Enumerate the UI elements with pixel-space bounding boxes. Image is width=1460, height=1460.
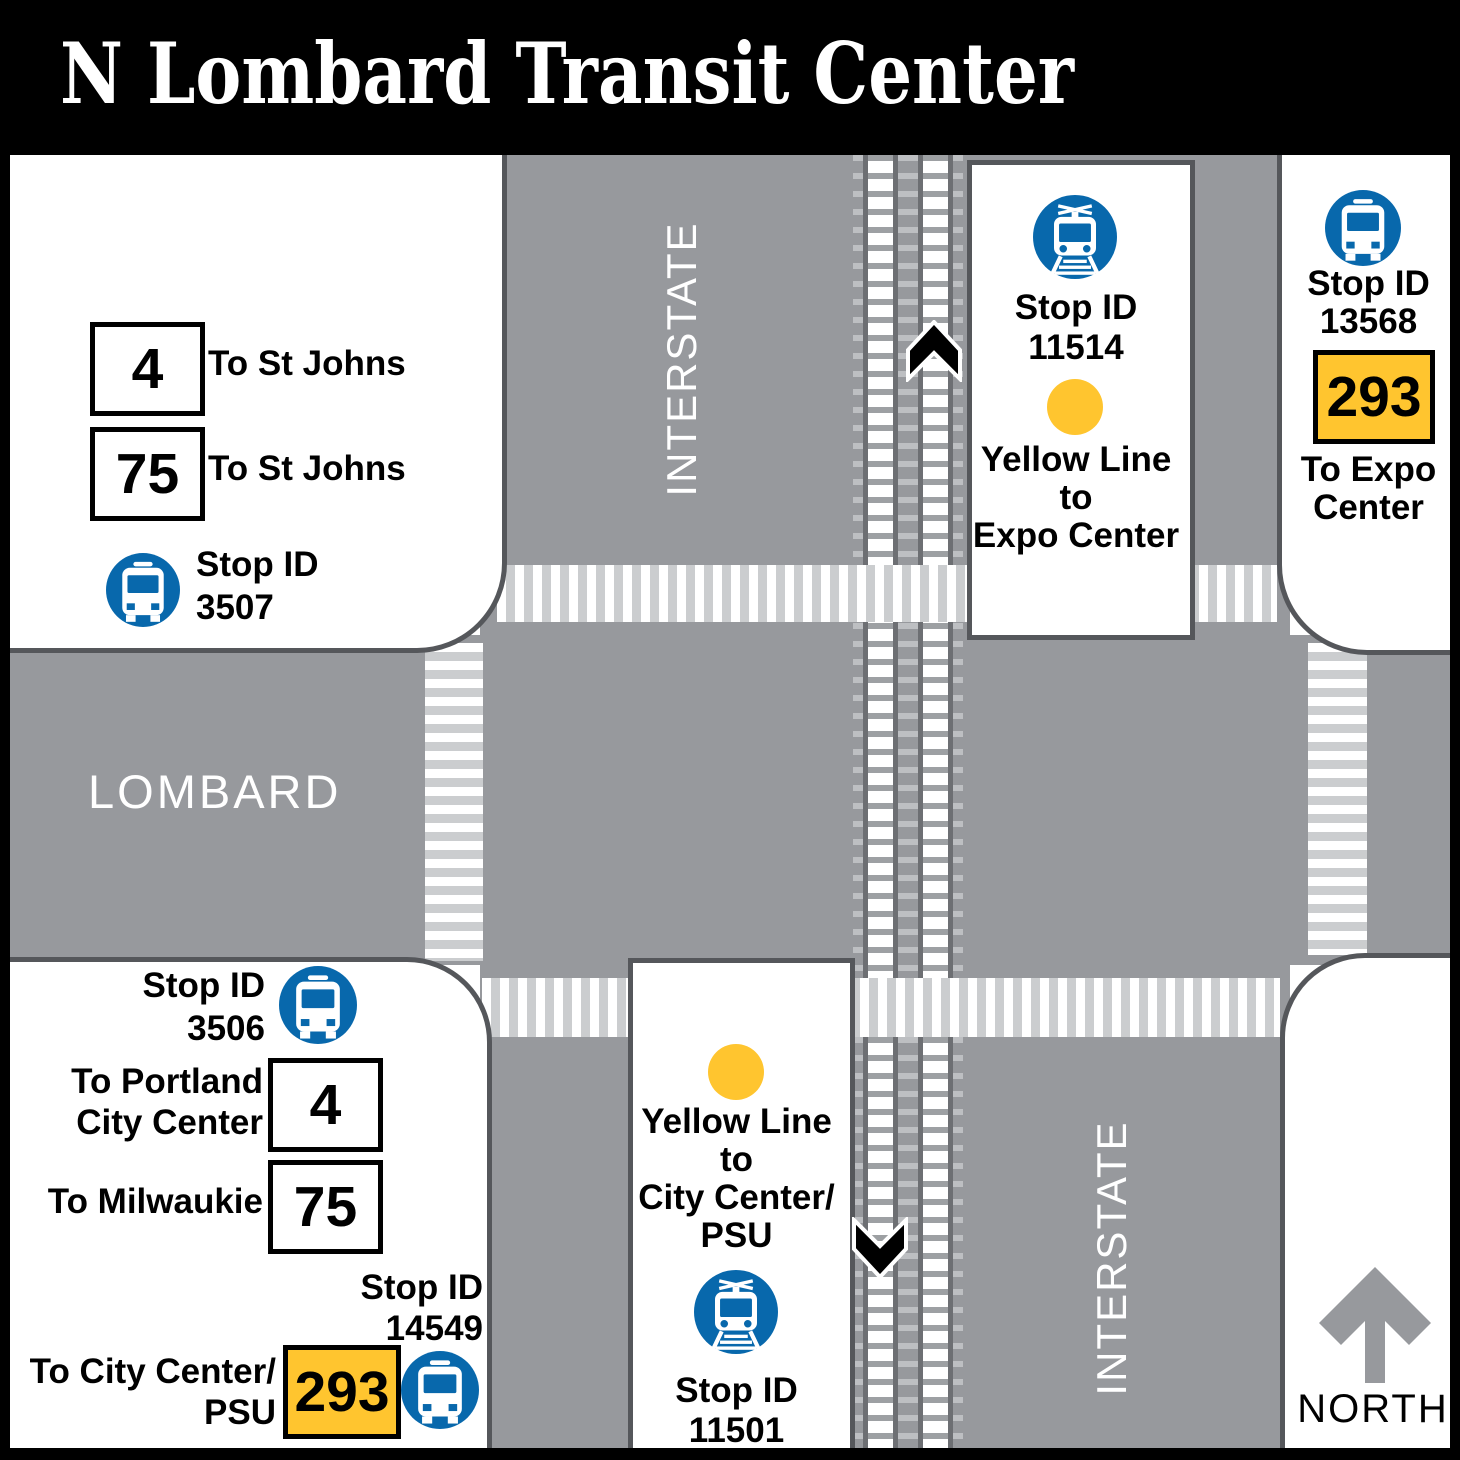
stop-id-caption: Stop ID bbox=[210, 1267, 483, 1308]
route-number: 75 bbox=[294, 1174, 357, 1240]
caption-line: To Expo bbox=[1287, 451, 1450, 489]
caption-line: City Center bbox=[10, 1102, 263, 1143]
street-label-interstate-north: INTERSTATE bbox=[659, 155, 705, 569]
header-bar: N Lombard Transit Center bbox=[0, 0, 1460, 155]
route-4-badge-north: 4 bbox=[90, 322, 205, 416]
route-number: 293 bbox=[294, 1359, 389, 1425]
north-arrow-icon bbox=[1313, 1263, 1437, 1387]
route-number: 4 bbox=[310, 1072, 342, 1138]
stop-id-caption: Stop ID bbox=[196, 543, 318, 586]
yellow-line-dot-icon bbox=[1047, 379, 1103, 435]
stop-11501-label: Stop ID 11501 bbox=[628, 1371, 845, 1448]
route-293-destination-north: To Expo Center bbox=[1287, 451, 1450, 527]
stop-id-caption: Stop ID bbox=[1287, 265, 1450, 303]
route-75-badge-north: 75 bbox=[90, 427, 205, 521]
light-rail-icon bbox=[1033, 195, 1117, 279]
route-number: 4 bbox=[132, 336, 164, 402]
caption-line: To Portland bbox=[10, 1061, 263, 1102]
stop-14549-label: Stop ID 14549 bbox=[210, 1267, 483, 1349]
route-number: 75 bbox=[116, 441, 179, 507]
route-number: 293 bbox=[1326, 364, 1421, 430]
stop-id-value: 13568 bbox=[1287, 303, 1450, 341]
stop-id-value: 11514 bbox=[967, 328, 1185, 368]
caption-line: City Center/ bbox=[628, 1179, 845, 1217]
route-4-destination-south: To Portland City Center bbox=[10, 1061, 263, 1143]
stop-13568-label: Stop ID 13568 bbox=[1287, 265, 1450, 341]
route-75-destination-north: To St Johns bbox=[208, 447, 406, 490]
bus-icon bbox=[279, 966, 357, 1044]
bus-icon bbox=[106, 553, 180, 627]
southbound-direction-chevron-icon bbox=[852, 1217, 908, 1279]
caption-line: Yellow Line bbox=[967, 441, 1185, 479]
stop-id-value: 11501 bbox=[628, 1411, 845, 1448]
bus-icon bbox=[401, 1351, 479, 1429]
caption-line: To City Center/ bbox=[10, 1351, 276, 1392]
yellow-line-south-caption: Yellow Line to City Center/ PSU bbox=[628, 1103, 845, 1255]
route-75-destination-south: To Milwaukie bbox=[10, 1181, 263, 1223]
street-label-lombard: LOMBARD bbox=[88, 765, 341, 819]
route-4-destination-north: To St Johns bbox=[208, 342, 406, 385]
light-rail-icon bbox=[694, 1270, 778, 1354]
route-293-badge-south: 293 bbox=[283, 1345, 401, 1439]
yellow-line-dot-icon bbox=[708, 1044, 764, 1100]
stop-id-value: 3506 bbox=[10, 1007, 265, 1050]
route-4-badge-south: 4 bbox=[268, 1058, 383, 1152]
stop-3507-label: Stop ID 3507 bbox=[196, 543, 318, 629]
stop-id-caption: Stop ID bbox=[628, 1371, 845, 1411]
northbound-direction-chevron-icon bbox=[906, 320, 962, 382]
caption-line: Yellow Line bbox=[628, 1103, 845, 1141]
caption-line: Expo Center bbox=[967, 517, 1185, 555]
caption-line: Center bbox=[1287, 489, 1450, 527]
page-title: N Lombard Transit Center bbox=[60, 24, 1074, 124]
caption-line: PSU bbox=[10, 1392, 276, 1433]
stop-id-value: 14549 bbox=[210, 1308, 483, 1349]
caption-line: to bbox=[967, 479, 1185, 517]
street-label-interstate-south: INTERSTATE bbox=[1089, 1048, 1135, 1448]
stop-id-caption: Stop ID bbox=[967, 288, 1185, 328]
stop-3506-label: Stop ID 3506 bbox=[10, 964, 265, 1050]
crosswalk-east bbox=[1308, 643, 1367, 955]
caption-line: PSU bbox=[628, 1217, 845, 1255]
crosswalk-west bbox=[425, 643, 483, 961]
north-label: NORTH bbox=[1273, 1387, 1450, 1431]
stop-id-value: 3507 bbox=[196, 586, 318, 629]
map-area: LOMBARD INTERSTATE INTERSTATE 4 To St Jo… bbox=[10, 155, 1450, 1448]
bus-icon bbox=[1325, 190, 1401, 266]
stop-11514-label: Stop ID 11514 bbox=[967, 288, 1185, 368]
route-293-badge-north: 293 bbox=[1313, 350, 1435, 444]
caption-line: to bbox=[628, 1141, 845, 1179]
crosswalk-south bbox=[482, 978, 1280, 1037]
transit-center-map: N Lombard Transit Center bbox=[0, 0, 1460, 1460]
stop-id-caption: Stop ID bbox=[10, 964, 265, 1007]
route-75-badge-south: 75 bbox=[268, 1160, 383, 1254]
yellow-line-north-caption: Yellow Line to Expo Center bbox=[967, 441, 1185, 555]
route-293-destination-south: To City Center/ PSU bbox=[10, 1351, 276, 1433]
